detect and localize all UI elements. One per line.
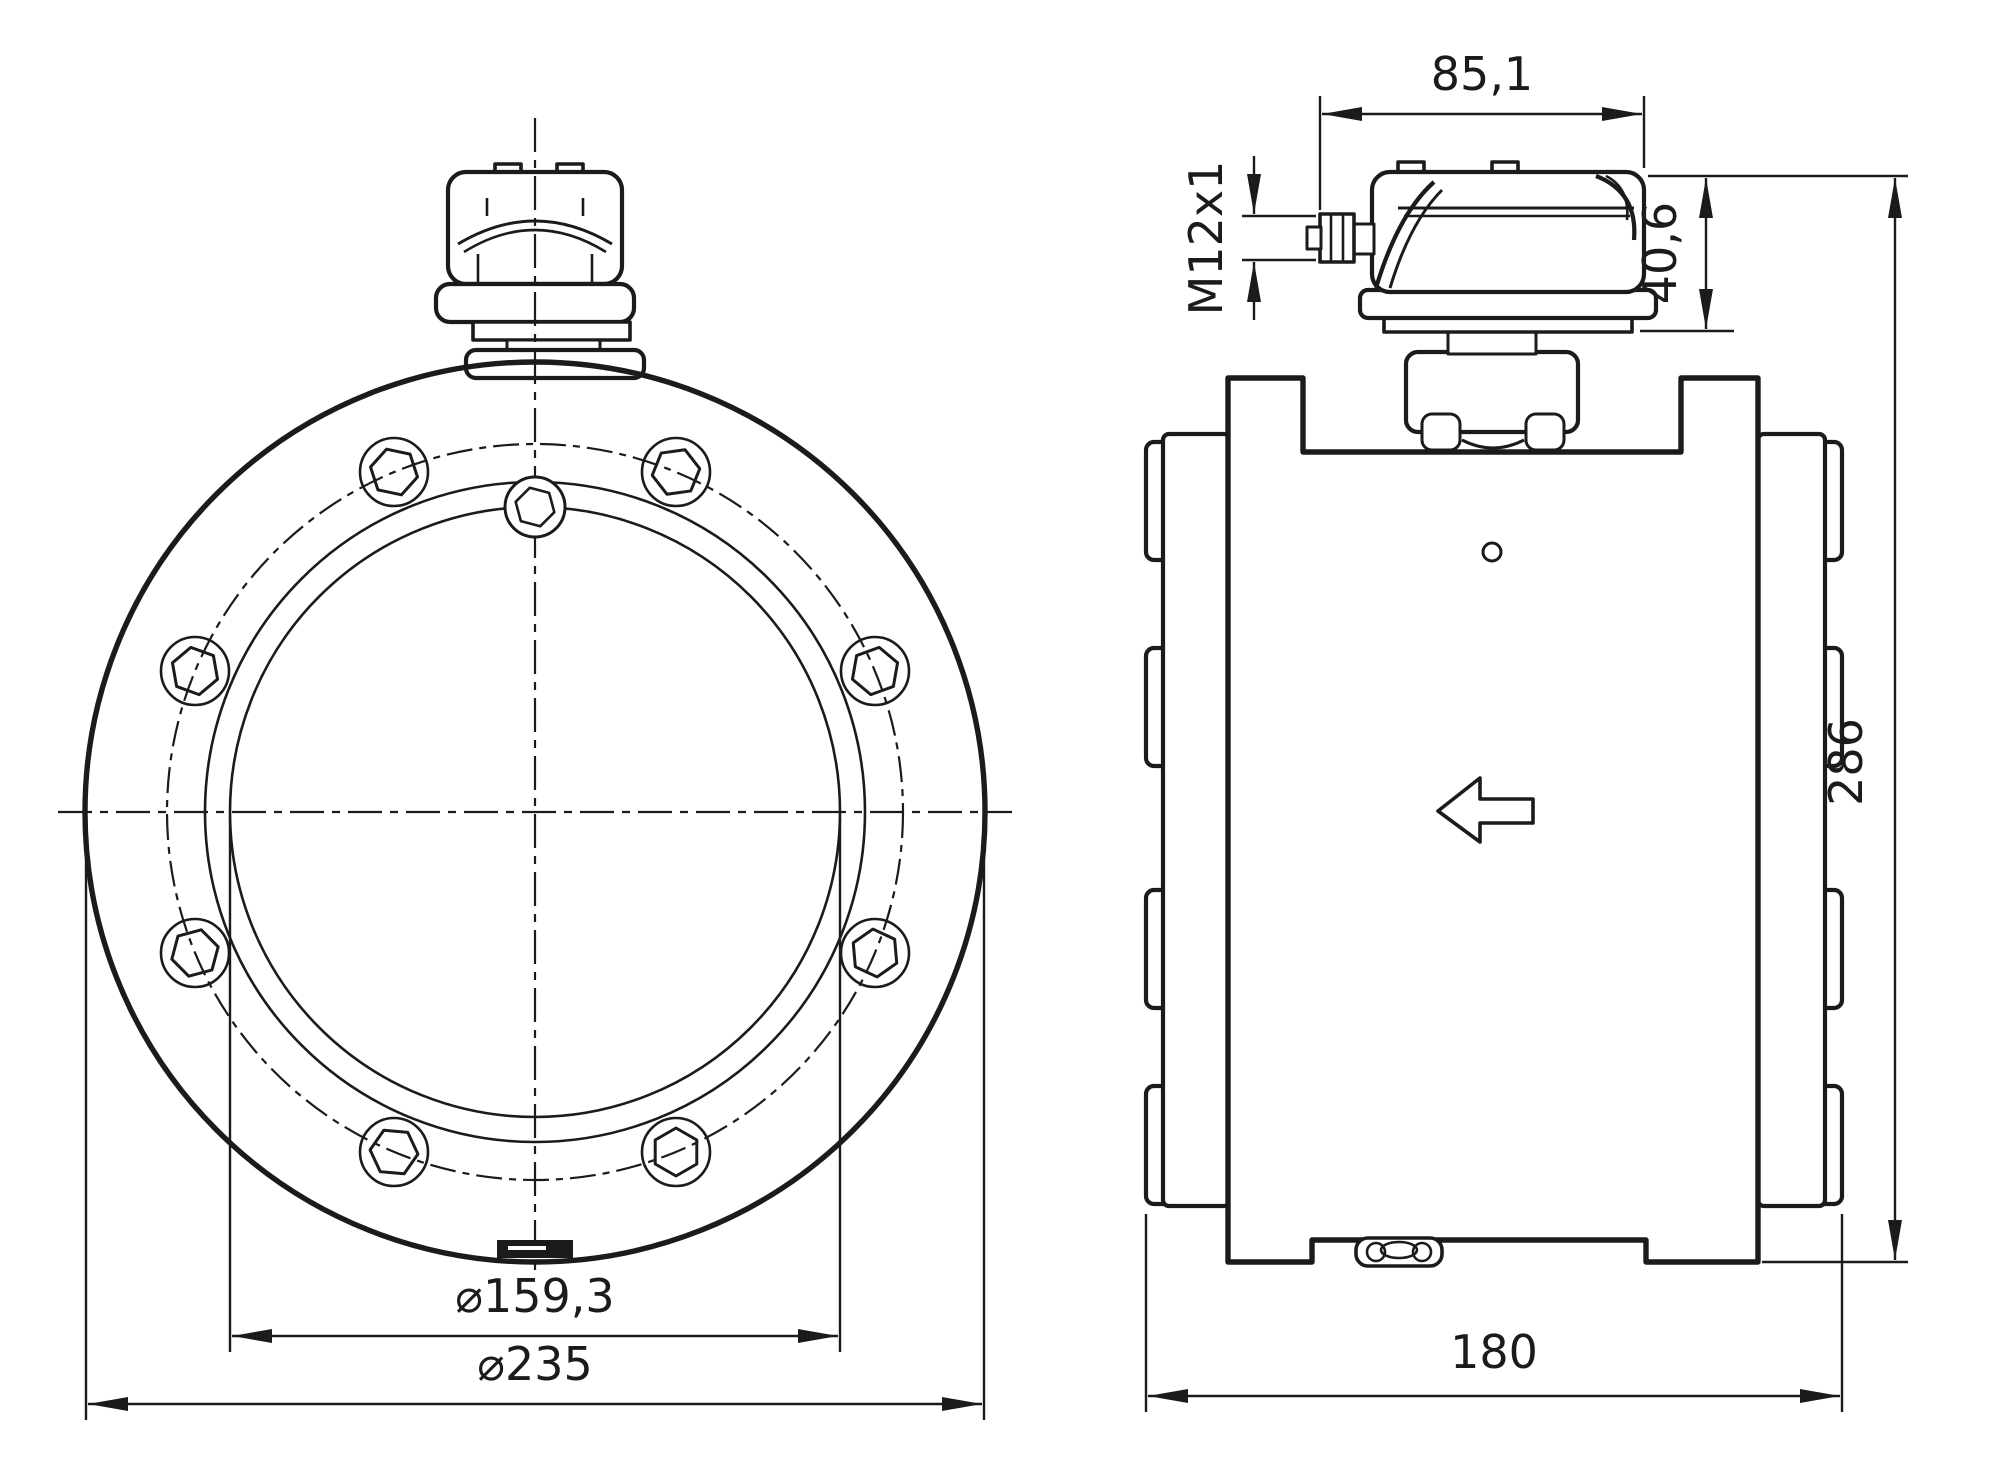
boss-foot: [1526, 414, 1564, 450]
dimension-label-connector-thread: M12x1: [1179, 161, 1233, 316]
flange-bolt: [642, 438, 710, 506]
m12-connector: [1307, 214, 1374, 262]
technical-drawing-page: ⌀159,3 ⌀235: [0, 0, 2000, 1462]
sensor-head-side: [1307, 162, 1656, 354]
sensor-head-front: [436, 164, 644, 378]
dimension-label-body-width: 180: [1450, 1325, 1538, 1379]
head-step-front: [473, 322, 630, 340]
connector-tip: [1307, 227, 1321, 249]
dimension-label-flange-outer-diameter: ⌀235: [477, 1337, 593, 1391]
meter-body: [1228, 378, 1758, 1262]
boss-arc: [1462, 440, 1524, 448]
transducer-plug-bottom: [497, 1240, 573, 1258]
front-view: ⌀159,3 ⌀235: [58, 118, 1012, 1420]
dimension-head-height: 40,6: [1633, 176, 1908, 331]
dimension-label-total-height: 286: [1819, 718, 1873, 806]
flange-edge-right: [1758, 434, 1842, 1206]
dimension-label-bore-diameter: ⌀159,3: [455, 1269, 614, 1323]
flange-edge-left: [1146, 434, 1230, 1206]
bottom-plug: [1356, 1238, 1442, 1266]
head-collar-side: [1360, 290, 1656, 318]
flange-column: [1163, 434, 1230, 1206]
dimension-label-head-width: 85,1: [1431, 47, 1533, 101]
dimension-connector-thread: M12x1: [1179, 156, 1316, 320]
head-mounting-boss: [1406, 352, 1578, 450]
flange-column: [1758, 434, 1825, 1206]
dimension-label-head-height: 40,6: [1633, 202, 1687, 304]
transducer-plug-top: [505, 477, 565, 537]
side-view: 85,1 M12x1 40,6 286 180: [1146, 47, 1908, 1412]
connector-nut: [1320, 214, 1354, 262]
flange-bolt: [161, 637, 229, 705]
technical-drawing: ⌀159,3 ⌀235: [0, 0, 2000, 1462]
boss-foot: [1422, 414, 1460, 450]
